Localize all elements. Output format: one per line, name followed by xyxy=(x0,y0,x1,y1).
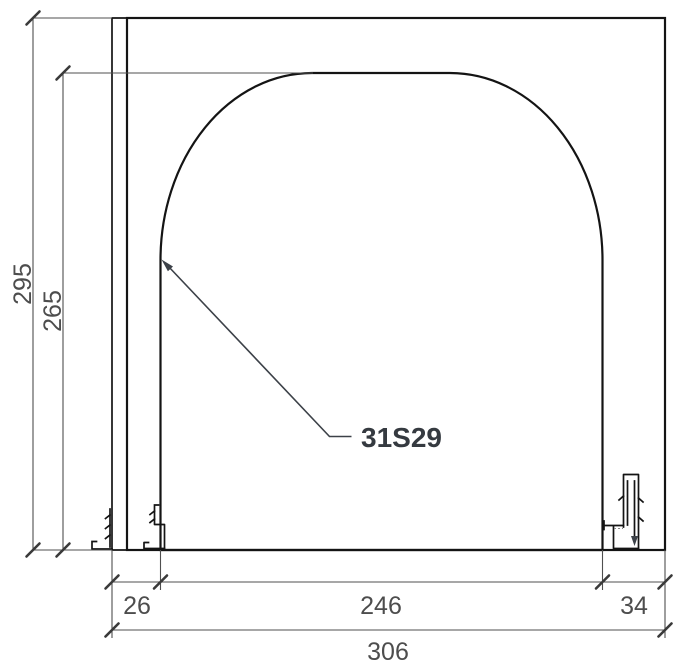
arched-opening xyxy=(161,73,603,550)
dimension-label-total-height: 295 xyxy=(9,263,37,305)
callout-label: 31S29 xyxy=(361,422,442,453)
dimension-label-left-jamb: 26 xyxy=(123,592,151,620)
technical-drawing: 295 265 26 246 34 306 31S29 xyxy=(0,0,679,666)
dimension-label-opening-height: 265 xyxy=(39,290,67,332)
dimension-horizontal-total: 306 xyxy=(106,624,672,666)
dimension-label-total-width: 306 xyxy=(367,638,409,666)
dimension-vertical-opening: 265 xyxy=(39,67,313,557)
floor-track-left xyxy=(92,509,112,549)
concrete-wall xyxy=(127,18,665,550)
dimension-label-right-jamb: 34 xyxy=(620,592,648,620)
plaster-profile-right-jamb xyxy=(604,475,643,549)
wood-lining-strip xyxy=(112,18,127,550)
drawing-canvas: 295 265 26 246 34 306 31S29 xyxy=(0,0,679,666)
dimension-horizontal-segments: 26 246 34 xyxy=(106,550,672,638)
dimension-label-opening-width: 246 xyxy=(360,592,402,620)
callout: 31S29 xyxy=(162,260,442,454)
dimension-vertical-total: 295 xyxy=(9,12,112,557)
